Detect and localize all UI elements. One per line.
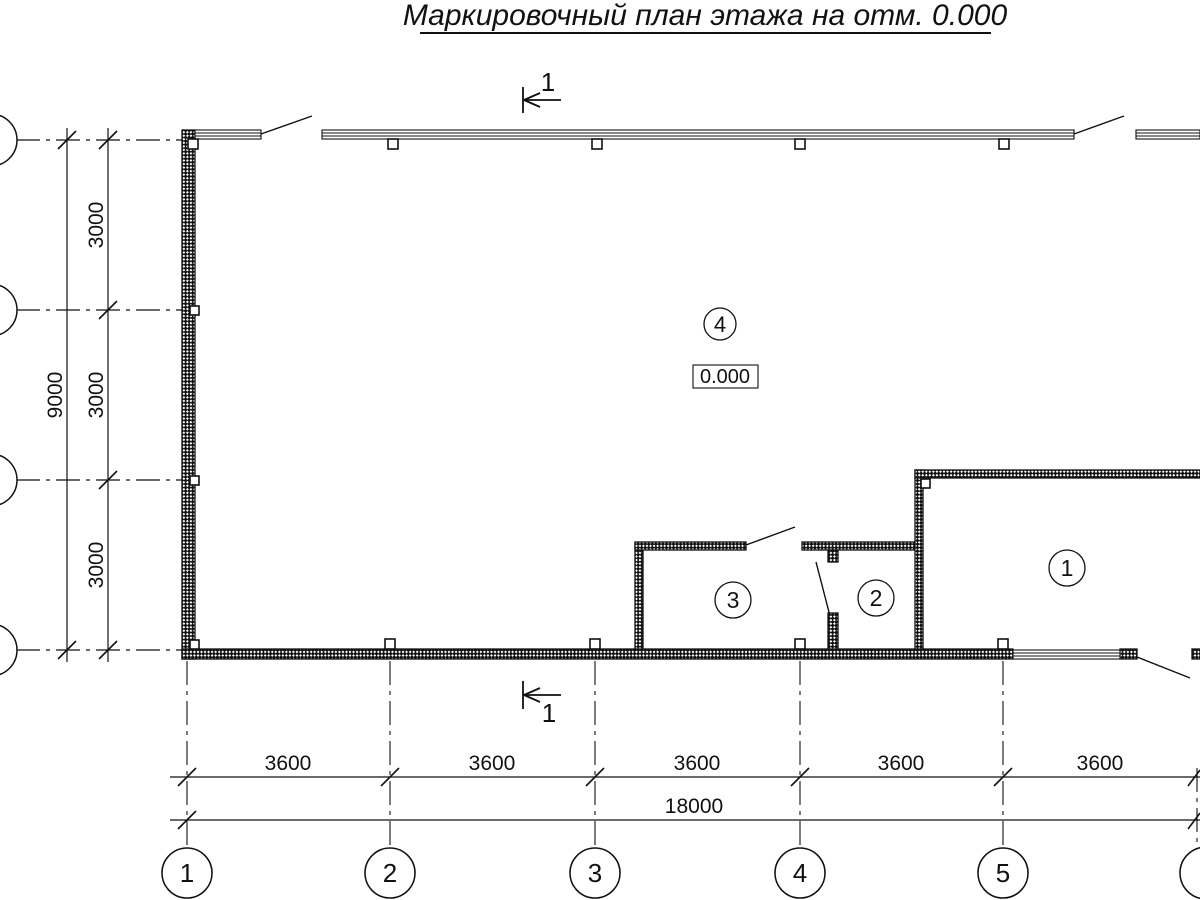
dim-tick	[1188, 813, 1200, 829]
plan-canvas: Маркировочный план этажа на отм. 0.000 1…	[0, 0, 1200, 900]
wall-exterior-bottom-stub	[1120, 649, 1137, 659]
wall-exterior-bottom	[182, 649, 1013, 659]
drawing-title: Маркировочный план этажа на отм. 0.000	[403, 0, 1008, 33]
room-number: 1	[1061, 555, 1074, 581]
elevation-value: 0.000	[700, 366, 750, 388]
wall-room3-left	[635, 543, 643, 649]
wall-room2-jamb-lower	[828, 613, 838, 649]
horizontal-dimensions: 3600 3600 3600 3600 3600 18000	[170, 752, 1200, 829]
column-mark	[388, 139, 398, 149]
section-label: 1	[542, 698, 556, 728]
column-mark	[190, 306, 199, 315]
axis-label: 5	[996, 858, 1010, 888]
column-mark	[795, 639, 805, 649]
dim-text: 3600	[674, 752, 721, 775]
axis-label: 1	[180, 858, 194, 888]
window-band	[195, 130, 261, 139]
axis-label: 2	[383, 858, 397, 888]
axis-circle-left	[0, 454, 17, 506]
column-mark	[592, 139, 602, 149]
wall-room1-left	[915, 470, 923, 649]
column-mark	[999, 139, 1009, 149]
door-leaf	[1137, 657, 1190, 678]
dim-text: 3000	[85, 542, 108, 589]
dim-text: 3600	[1077, 752, 1124, 775]
column-mark	[921, 479, 930, 488]
section-arrowhead-icon	[524, 93, 540, 100]
room-number: 4	[714, 312, 726, 337]
column-mark	[998, 639, 1008, 649]
column-mark	[190, 640, 199, 649]
column-marks	[188, 139, 1009, 649]
column-mark	[385, 639, 395, 649]
room-number: 2	[870, 585, 883, 611]
vertical-dimensions: 3000 3000 3000 9000	[44, 128, 117, 662]
door-leaf	[816, 562, 830, 616]
room-number: 3	[727, 587, 740, 613]
wall-room3-top	[635, 542, 746, 550]
dim-text-total: 9000	[44, 372, 67, 419]
wall-room2-jamb-upper	[828, 550, 838, 562]
dim-text: 3000	[85, 202, 108, 249]
walls	[182, 130, 1200, 659]
column-mark	[188, 139, 198, 149]
axis-circle-left	[0, 624, 17, 676]
room-labels: 4 0.000 3 2 1	[693, 308, 1085, 618]
section-label: 1	[541, 67, 555, 97]
window-band	[322, 130, 1074, 139]
dim-text: 3000	[85, 372, 108, 419]
section-mark-top: 1	[523, 67, 561, 113]
window-band	[1013, 650, 1120, 659]
dim-tick	[1188, 770, 1200, 786]
section-arrowhead-icon	[524, 100, 540, 107]
axis-label: 4	[793, 858, 807, 888]
axis-label: 3	[588, 858, 602, 888]
wall-room2-top	[802, 542, 915, 550]
axis-circle-left	[0, 114, 17, 166]
axis-circle	[1180, 847, 1200, 899]
door-leaf	[261, 116, 312, 134]
dim-text: 3600	[878, 752, 925, 775]
section-arrowhead-icon	[524, 695, 540, 702]
column-mark	[590, 639, 600, 649]
column-mark	[190, 476, 199, 485]
page-title: Маркировочный план этажа на отм. 0.000	[403, 0, 1008, 32]
section-arrowhead-icon	[524, 688, 540, 695]
section-mark-bottom: 1	[523, 681, 561, 728]
door-leaf	[1074, 116, 1124, 134]
wall-exterior-bottom-stub	[1192, 649, 1200, 659]
window-band	[1136, 130, 1200, 139]
dim-text-total: 18000	[665, 795, 723, 818]
axis-circle-left	[0, 284, 17, 336]
door-leaf	[746, 527, 795, 545]
wall-exterior-left	[182, 130, 195, 659]
bottom-axes-circles: 1 2 3 4 5 6	[162, 847, 1200, 899]
dim-text: 3600	[469, 752, 516, 775]
windows	[195, 130, 1200, 659]
wall-room1-top	[915, 470, 1200, 478]
dim-text: 3600	[265, 752, 312, 775]
floor-plan-drawing: Маркировочный план этажа на отм. 0.000 1…	[0, 0, 1200, 900]
column-mark	[795, 139, 805, 149]
